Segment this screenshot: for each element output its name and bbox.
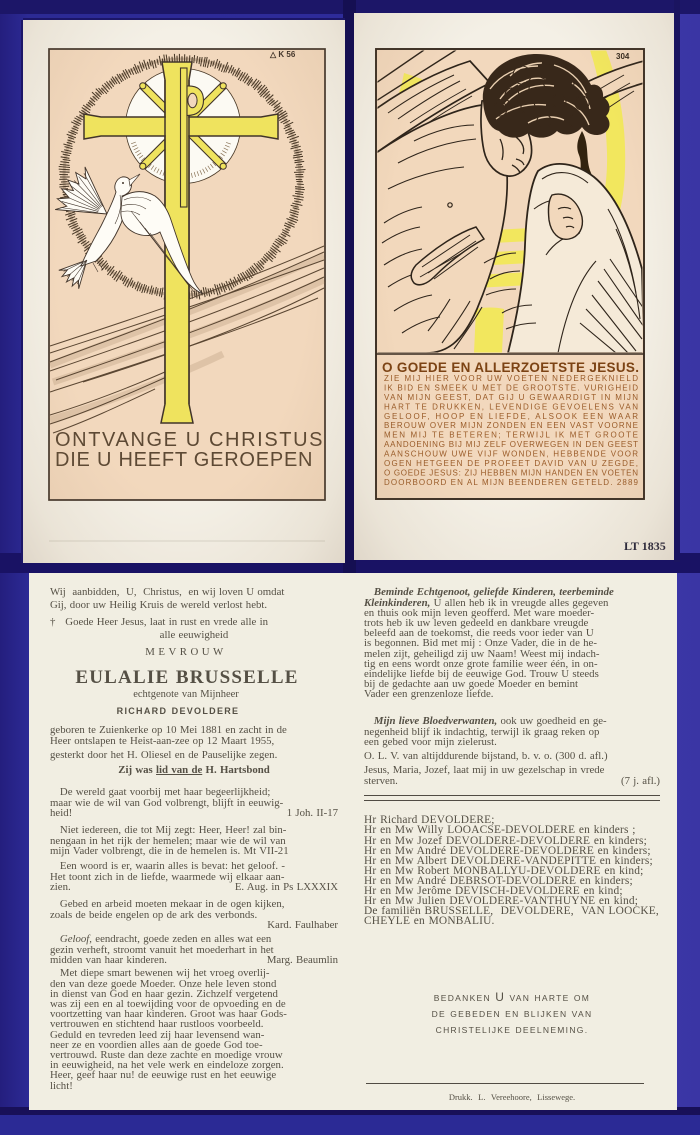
svg-text:DOORBOORD EN AL MIJN BEENDEREN: DOORBOORD EN AL MIJN BEENDEREN GETELD. 2… <box>384 478 639 487</box>
svg-text:BEROUW OVER MIJN ZONDEN EN EEN: BEROUW OVER MIJN ZONDEN EN EEN VAST VOOR… <box>384 421 638 430</box>
svg-text:LT 1835: LT 1835 <box>624 539 666 553</box>
svg-text:AANSCHOUW UWE VIJF WONDEN, HEB: AANSCHOUW UWE VIJF WONDEN, HEBBENDE VOOR <box>384 450 638 459</box>
svg-text:△ K 56: △ K 56 <box>269 50 296 59</box>
svg-text:AANDOENING BIJ MIJ ZELF OVERWE: AANDOENING BIJ MIJ ZELF OVERWEGEN IN DEN… <box>384 440 638 449</box>
svg-text:304: 304 <box>616 52 630 61</box>
svg-text:IK BID EN SMEEK U MET DE GROOT: IK BID EN SMEEK U MET DE GROOTSTE. VURIG… <box>384 383 638 392</box>
svg-text:VAN MIJN GEEST, DAT GIJ U GEWA: VAN MIJN GEEST, DAT GIJ U GEWAARDIGT IN … <box>384 393 638 402</box>
svg-text:ZIE MIJ HIER VOOR UW VOETEN NE: ZIE MIJ HIER VOOR UW VOETEN NEDERGEKNIEL… <box>384 374 638 383</box>
svg-text:ONTVANGE U CHRISTUS: ONTVANGE U CHRISTUS <box>55 429 323 451</box>
svg-text:DIE U HEEFT GEROEPEN: DIE U HEEFT GEROEPEN <box>55 449 313 471</box>
svg-text:O GOEDE EN ALLERZOETSTE JESUS.: O GOEDE EN ALLERZOETSTE JESUS. <box>382 360 640 375</box>
svg-text:O GOEDE JESUS: ZIJ HEBBEN MIJN: O GOEDE JESUS: ZIJ HEBBEN MIJN HANDEN EN… <box>384 469 638 478</box>
